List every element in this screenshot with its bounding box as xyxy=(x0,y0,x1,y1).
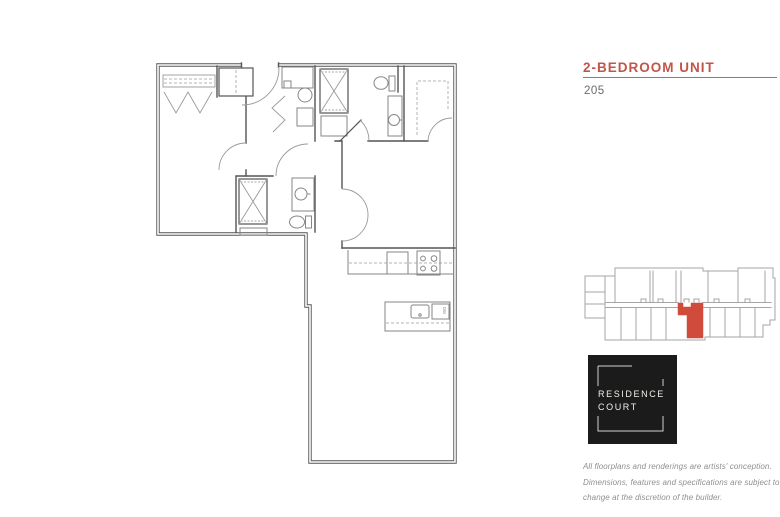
unit-type-heading: 2-BEDROOM UNIT xyxy=(583,60,715,75)
disclaimer-line-1: All floorplans and renderings are artist… xyxy=(583,459,780,475)
bathroom-2 xyxy=(239,144,314,235)
walk-in-closet xyxy=(417,81,452,142)
toilet xyxy=(374,76,395,91)
logo-wordmark: RESIDENCE COURT xyxy=(595,386,668,416)
toilet xyxy=(290,216,312,228)
unit-floorplan-drawing: DW xyxy=(0,0,540,517)
building-keyplan xyxy=(583,262,777,347)
shower xyxy=(239,179,267,224)
bathroom-1 xyxy=(320,69,402,141)
unit-outline xyxy=(158,63,455,462)
bedroom-1-door xyxy=(219,143,246,170)
logo-line-1: RESIDENCE xyxy=(598,388,665,401)
linen-cabinet xyxy=(321,116,347,136)
unit-number: 205 xyxy=(584,85,605,97)
disclaimer-text: All floorplans and renderings are artist… xyxy=(583,459,780,506)
kitchen: DW xyxy=(348,250,453,331)
svg-text:DW: DW xyxy=(442,307,447,314)
shower xyxy=(320,69,348,113)
closet-door xyxy=(428,118,452,142)
bedroom-1-closet xyxy=(163,75,215,113)
bathroom-2-door xyxy=(276,144,308,176)
bifold-doors xyxy=(164,92,212,113)
unit-entry-door xyxy=(242,68,279,105)
title-rule xyxy=(583,77,777,78)
residence-court-logo: RESIDENCE COURT xyxy=(588,355,677,444)
entry-closet xyxy=(219,68,253,96)
logo-line-2: COURT xyxy=(598,401,665,414)
bifold-door xyxy=(272,96,285,132)
bedroom-2-doors xyxy=(342,189,368,241)
vanity-sink xyxy=(388,96,402,136)
floorplan-brochure-page: DW 2-BEDROOM UNIT 205 xyxy=(0,0,780,517)
counter xyxy=(348,250,453,274)
info-sidebar: 2-BEDROOM UNIT 205 xyxy=(583,0,780,517)
disclaimer-line-3: change at the discretion of the builder. xyxy=(583,490,780,506)
highlighted-unit-205 xyxy=(678,303,703,338)
bathroom-1-door xyxy=(340,120,369,141)
disclaimer-line-2: Dimensions, features and specifications … xyxy=(583,475,780,491)
island: DW xyxy=(385,302,450,331)
vanity-sink xyxy=(292,178,314,211)
